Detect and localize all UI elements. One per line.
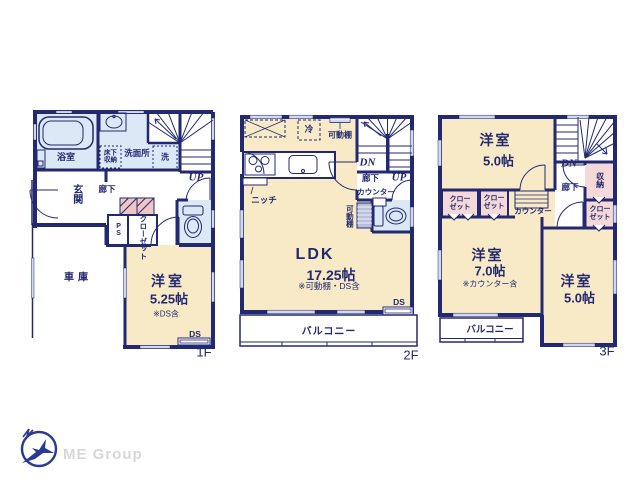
room-note-bedroom: ※DS含 bbox=[153, 309, 179, 318]
logo-company-name: ME Group bbox=[63, 446, 143, 463]
floor-plan-3f: 洋室 5.0帖 DN 廊下 収納 クローゼット クローゼット カウンター クロー… bbox=[435, 110, 625, 368]
room-note-ldk: ※可動棚・DS含 bbox=[298, 282, 359, 292]
room-label-bedroom-c: 洋室 bbox=[561, 273, 593, 289]
room-label-closet-a: クローゼット bbox=[449, 196, 472, 212]
label-shelf-top: 可動棚 bbox=[328, 130, 352, 139]
room-label-storage: 収納 bbox=[595, 172, 604, 188]
floor-label-3f: 3F bbox=[599, 345, 614, 360]
room-label-bedroom-b: 洋室 bbox=[472, 247, 504, 263]
room-size-bedroom-b: 7.0帖 bbox=[474, 264, 505, 279]
room-label-balcony: バルコニー bbox=[302, 326, 357, 338]
stairs-down-label: DN bbox=[561, 158, 577, 171]
stairs-up-label: UP bbox=[392, 172, 407, 185]
label-counter: カウンター bbox=[357, 189, 395, 198]
floorplan-canvas: 浴室 洗面所 床下収納 洗 UP 玄関 廊下 PS クローゼット 車庫 洋室 5… bbox=[0, 0, 640, 480]
room-label-hallway: 廊下 bbox=[98, 185, 115, 195]
room-label-ldk: LDK bbox=[296, 246, 335, 264]
label-pipe-space: PS bbox=[114, 223, 122, 237]
label-counter: カウンター bbox=[514, 207, 552, 216]
room-label-entrance: 玄関 bbox=[70, 184, 82, 204]
room-label-hallway: 廊下 bbox=[561, 183, 578, 193]
room-label-bedroom: 洋室 bbox=[151, 273, 185, 289]
stairs-down-label: DN bbox=[360, 156, 376, 169]
floor-plan-2f: 冷 可動棚 ニッチ DN UP 廊下 カウンター 可動棚 LDK 17.25帖 … bbox=[237, 110, 422, 368]
room-label-garage: 車庫 bbox=[64, 272, 92, 284]
room-label-washroom: 洗面所 bbox=[124, 149, 150, 159]
room-label-bedroom-a: 洋室 bbox=[480, 132, 512, 148]
floor-label-1f: 1F bbox=[196, 346, 211, 361]
stairs-up-label: UP bbox=[189, 172, 204, 185]
label-duct-space: DS bbox=[189, 330, 201, 340]
me-group-logo: ME Group bbox=[18, 424, 238, 474]
room-label-closet-b: クローゼット bbox=[483, 195, 506, 211]
floor-3f-drawing bbox=[435, 110, 625, 368]
label-duct-space: DS bbox=[393, 298, 405, 308]
room-label-bathroom: 浴室 bbox=[57, 152, 75, 162]
room-note-bedroom-b: ※カウンター含 bbox=[463, 279, 518, 288]
me-group-bird-logo-icon bbox=[18, 424, 62, 472]
label-shelf-side: 可動棚 bbox=[345, 205, 354, 228]
room-label-closet: クローゼット bbox=[138, 215, 147, 245]
room-size-bedroom-c: 5.0帖 bbox=[564, 291, 595, 306]
label-underfloor-storage: 床下収納 bbox=[102, 150, 119, 165]
room-label-balcony: バルコニー bbox=[466, 326, 513, 337]
label-niche: ニッチ bbox=[251, 196, 277, 206]
floor-plan-1f: 浴室 洗面所 床下収納 洗 UP 玄関 廊下 PS クローゼット 車庫 洋室 5… bbox=[30, 110, 220, 365]
room-size-bedroom-a: 5.0帖 bbox=[483, 154, 514, 169]
room-label-closet-c: クローゼット bbox=[589, 206, 612, 222]
label-washer: 洗 bbox=[161, 152, 169, 161]
room-label-hallway: 廊下 bbox=[362, 174, 379, 184]
floor-label-2f: 2F bbox=[403, 349, 418, 364]
label-fridge: 冷 bbox=[305, 125, 314, 135]
room-size-bedroom: 5.25帖 bbox=[150, 293, 188, 308]
